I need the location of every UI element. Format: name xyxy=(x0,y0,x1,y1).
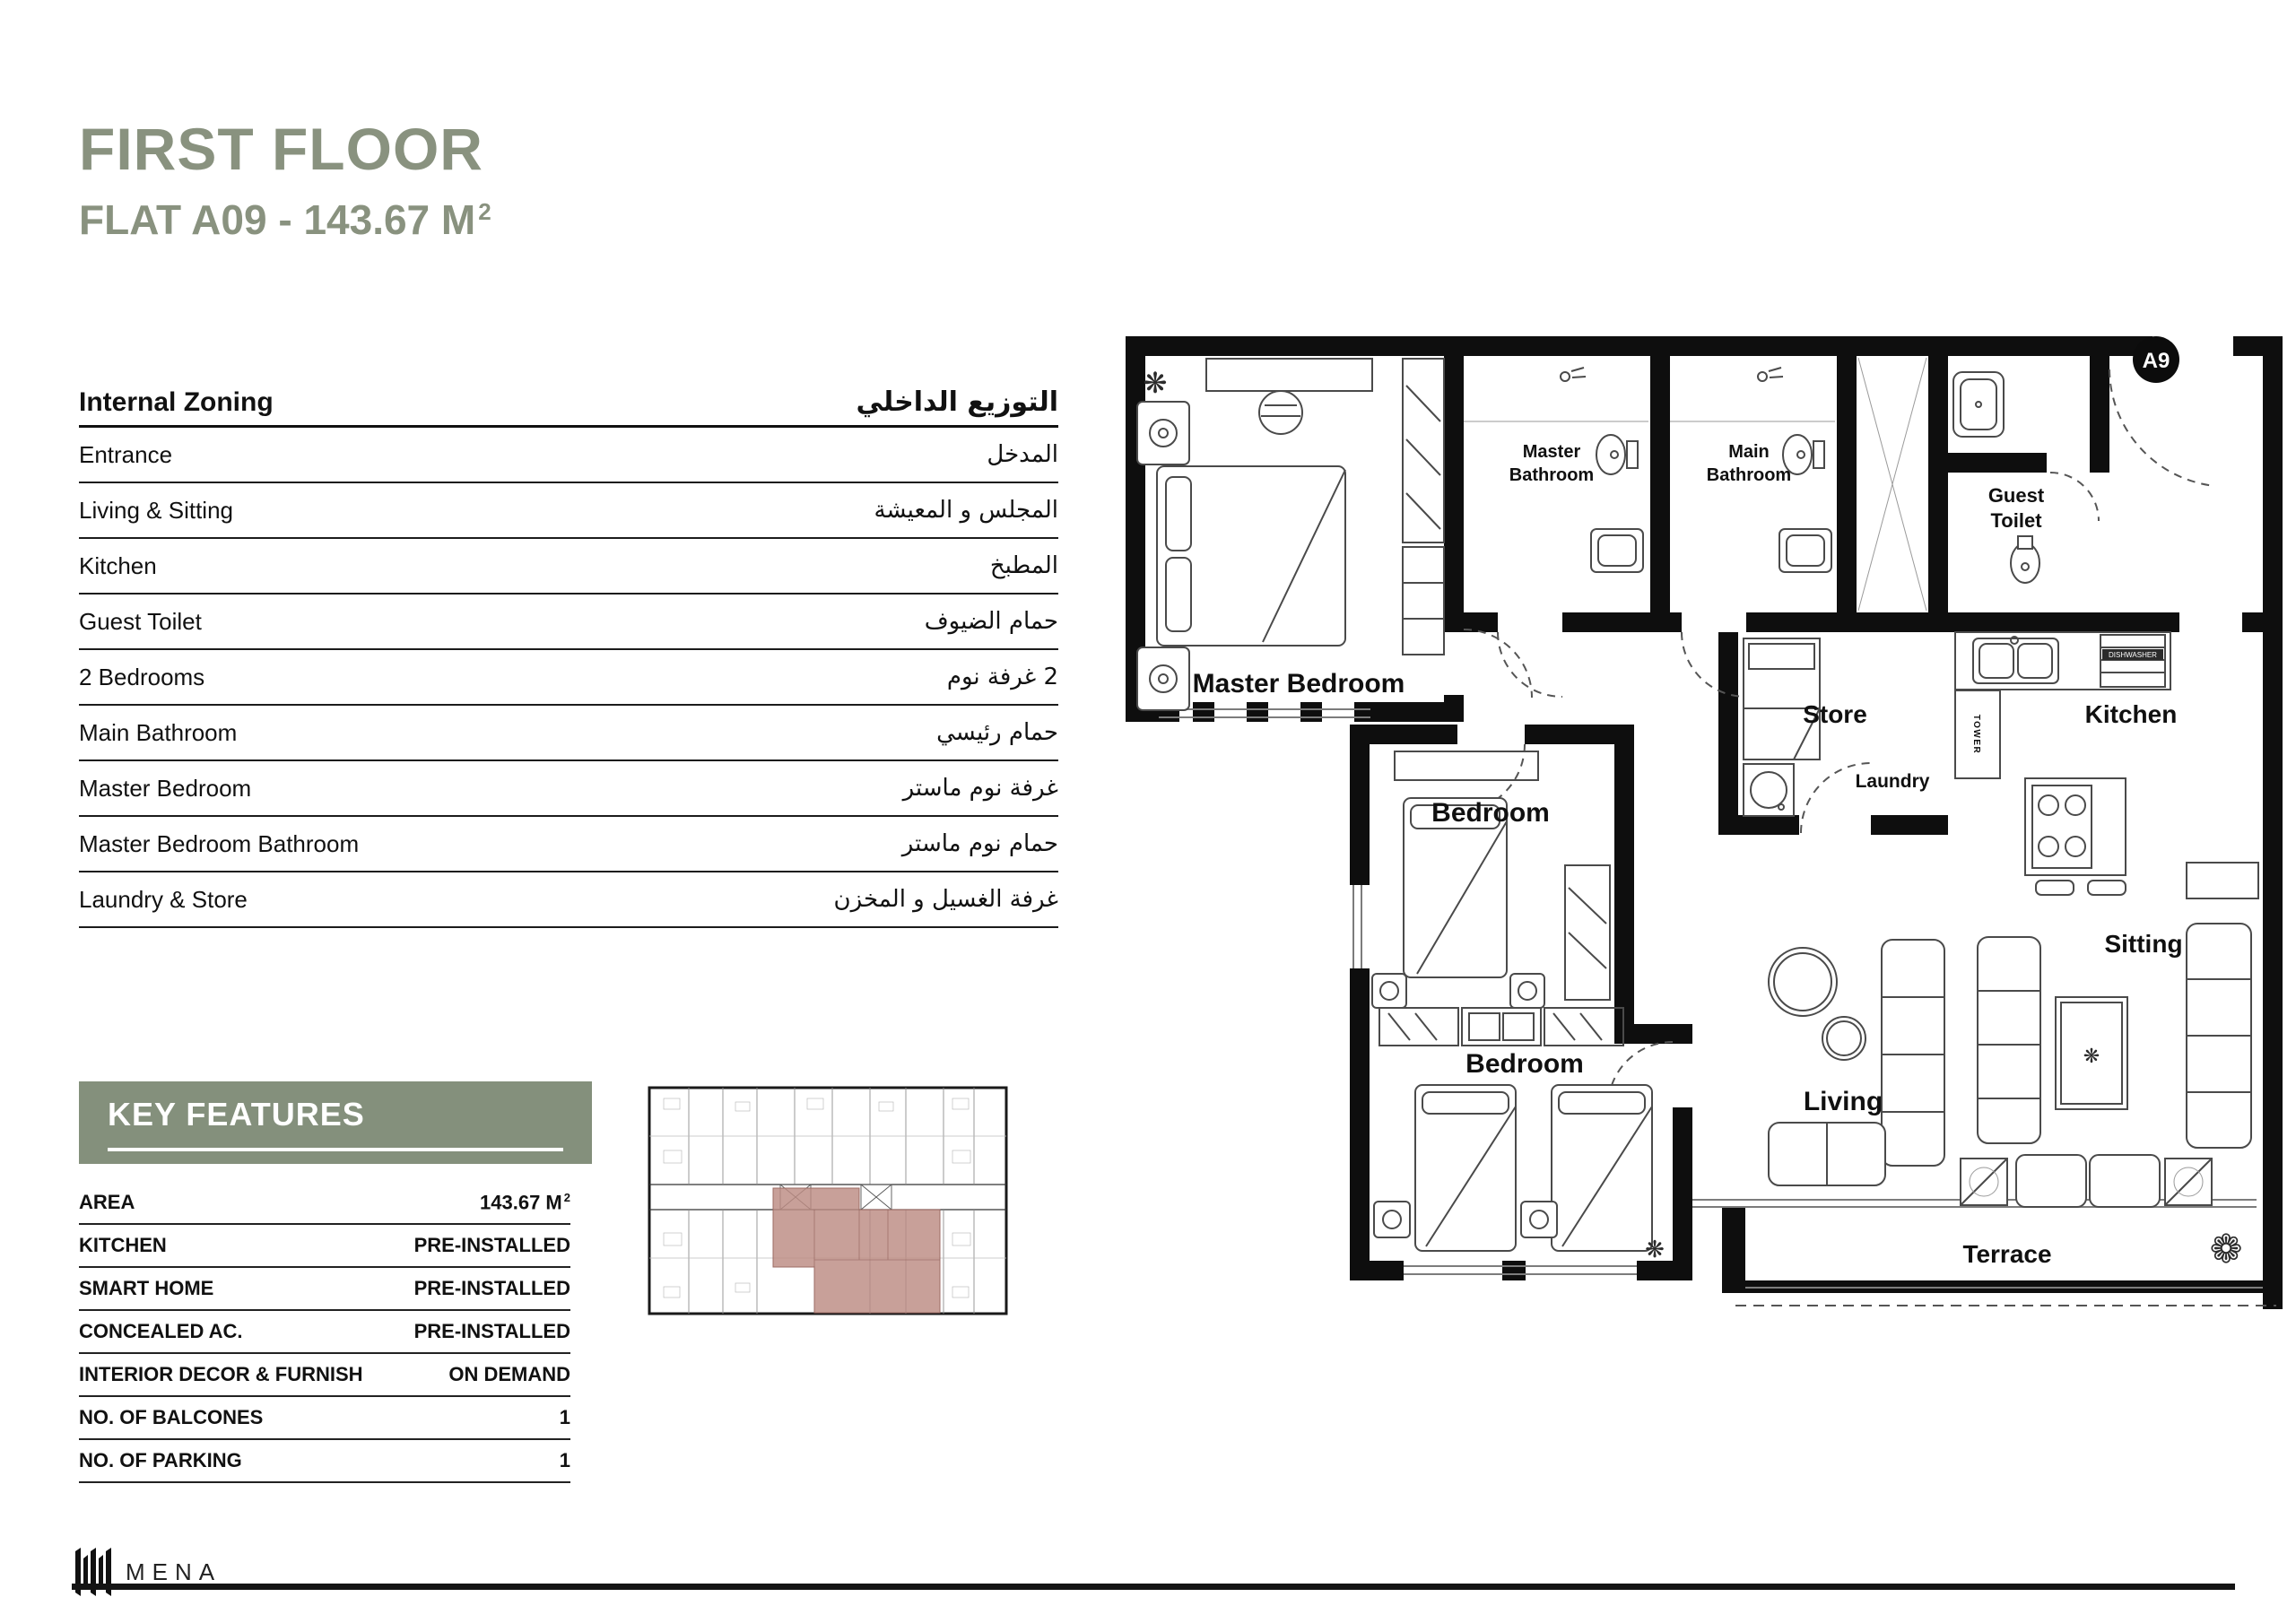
feature-row: NO. OF PARKING1 xyxy=(79,1440,570,1483)
internal-zoning-table: Internal Zoning التوزيع الداخلي Entrance… xyxy=(79,366,1058,928)
label-sitting: Sitting xyxy=(2104,930,2182,958)
living-sitting-furniture: ❋ xyxy=(1769,863,2258,1207)
feature-value: ON DEMAND xyxy=(448,1363,570,1386)
footer-rule xyxy=(72,1584,2235,1590)
zoning-ar: حمام رئيسي xyxy=(936,719,1058,746)
key-features-underline xyxy=(108,1148,563,1151)
feature-row: AREA143.67 M2 xyxy=(79,1182,570,1225)
feature-row: INTERIOR DECOR & FURNISHON DEMAND xyxy=(79,1354,570,1397)
zoning-header-en: Internal Zoning xyxy=(79,387,274,418)
zoning-en: 2 Bedrooms xyxy=(79,664,204,691)
shaft xyxy=(1858,358,1926,611)
label-guest-toilet-1: Guest xyxy=(1988,484,2045,507)
building-key-plan xyxy=(637,1081,1018,1342)
feature-value: PRE-INSTALLED xyxy=(414,1277,570,1300)
feature-value: 1 xyxy=(560,1449,570,1472)
feature-value: 1 xyxy=(560,1406,570,1429)
feature-label: KITCHEN xyxy=(79,1234,167,1257)
bedroom2-furniture: ❋ xyxy=(1374,1085,1665,1263)
feature-row: KITCHENPRE-INSTALLED xyxy=(79,1225,570,1268)
feature-row: CONCEALED AC.PRE-INSTALLED xyxy=(79,1311,570,1354)
feature-row: NO. OF BALCONES1 xyxy=(79,1397,570,1440)
zoning-row: Master Bedroomغرفة نوم ماستر xyxy=(79,761,1058,817)
highlighted-unit xyxy=(773,1188,940,1313)
kitchen-furniture: DISHWASHER TOWER xyxy=(1955,632,2170,895)
zoning-ar: غرفة نوم ماستر xyxy=(903,775,1058,802)
dishwasher-label: DISHWASHER xyxy=(2109,651,2157,659)
zoning-ar: 2 غرفة نوم xyxy=(947,664,1058,690)
subtitle-superscript: 2 xyxy=(478,198,491,225)
zoning-en: Guest Toilet xyxy=(79,608,202,636)
zoning-row: Master Bedroom Bathroomحمام نوم ماستر xyxy=(79,817,1058,872)
zoning-row: 2 Bedrooms2 غرفة نوم xyxy=(79,650,1058,706)
floorplan-sheet: FIRST FLOOR FLAT A09 - 143.67 M2 Interna… xyxy=(0,0,2296,1623)
label-laundry: Laundry xyxy=(1856,771,1930,792)
feature-value: PRE-INSTALLED xyxy=(414,1234,570,1257)
label-kitchen: Kitchen xyxy=(2085,700,2178,728)
zoning-ar: المجلس و المعيشة xyxy=(874,497,1059,524)
zoning-en: Kitchen xyxy=(79,552,157,580)
label-guest-toilet-2: Toilet xyxy=(1990,509,2042,532)
page-title: FIRST FLOOR xyxy=(79,115,483,183)
label-master-bathroom-2: Bathroom xyxy=(1509,465,1594,485)
zoning-ar: حمام نوم ماستر xyxy=(902,830,1058,857)
zoning-ar: المدخل xyxy=(987,441,1058,468)
label-main-bathroom-1: Main xyxy=(1728,442,1770,462)
feature-label: NO. OF BALCONES xyxy=(79,1406,263,1429)
key-features-banner: KEY FEATURES xyxy=(79,1081,592,1164)
svg-text:❋: ❋ xyxy=(1144,366,1168,400)
zoning-row: Living & Sittingالمجلس و المعيشة xyxy=(79,483,1058,539)
zoning-row: Laundry & Storeغرفة الغسيل و المخزن xyxy=(79,872,1058,928)
zoning-en: Entrance xyxy=(79,441,172,469)
zoning-en: Laundry & Store xyxy=(79,886,248,914)
key-features-table: AREA143.67 M2 KITCHENPRE-INSTALLED SMART… xyxy=(79,1182,570,1483)
brand-name: MENA xyxy=(126,1558,222,1586)
feature-value: 143.67 M2 xyxy=(480,1191,570,1214)
zoning-row: Kitchenالمطبخ xyxy=(79,539,1058,595)
feature-label: AREA xyxy=(79,1191,135,1214)
feature-label: NO. OF PARKING xyxy=(79,1449,242,1472)
guest-toilet-fixtures xyxy=(1953,372,2039,583)
zoning-row: Main Bathroomحمام رئيسي xyxy=(79,706,1058,761)
svg-text:❋: ❋ xyxy=(2083,1046,2100,1068)
label-bedroom-1: Bedroom xyxy=(1431,798,1550,828)
feature-row: SMART HOMEPRE-INSTALLED xyxy=(79,1268,570,1311)
flat-subtitle-text: FLAT A09 - 143.67 M xyxy=(79,196,475,243)
area-superscript: 2 xyxy=(564,1191,570,1204)
tower-unit-label: TOWER xyxy=(1971,715,1981,755)
key-features-title: KEY FEATURES xyxy=(108,1096,365,1133)
zoning-ar: حمام الضيوف xyxy=(925,608,1058,635)
unit-badge-text: A9 xyxy=(2143,349,2170,373)
label-main-bathroom-2: Bathroom xyxy=(1707,465,1791,485)
label-master-bathroom-1: Master xyxy=(1523,442,1581,462)
label-store: Store xyxy=(1803,700,1867,728)
zoning-en: Main Bathroom xyxy=(79,719,237,747)
zoning-row: Entranceالمدخل xyxy=(79,428,1058,483)
label-bedroom-2: Bedroom xyxy=(1465,1049,1584,1079)
svg-text:❋: ❋ xyxy=(1645,1237,1665,1263)
zoning-ar: غرفة الغسيل و المخزن xyxy=(834,886,1058,913)
feature-value: PRE-INSTALLED xyxy=(414,1320,570,1343)
unit-badge: A9 xyxy=(2133,336,2179,383)
zoning-en: Master Bedroom xyxy=(79,775,251,803)
zoning-en: Living & Sitting xyxy=(79,497,233,525)
zoning-header: Internal Zoning التوزيع الداخلي xyxy=(79,366,1058,428)
label-terrace: Terrace xyxy=(1962,1240,2051,1268)
zoning-ar: المطبخ xyxy=(990,552,1058,579)
master-bedroom-furniture: ❋ xyxy=(1137,359,1444,710)
flat-floor-plan: ❋ DISH xyxy=(1121,318,2287,1314)
feature-label: SMART HOME xyxy=(79,1277,213,1300)
feature-label: INTERIOR DECOR & FURNISH xyxy=(79,1363,363,1386)
bedroom1-furniture xyxy=(1372,751,1623,1046)
zoning-header-ar: التوزيع الداخلي xyxy=(857,386,1058,418)
label-living: Living xyxy=(1804,1087,1883,1116)
label-master-bedroom: Master Bedroom xyxy=(1193,669,1405,699)
terrace-plant: ❁ xyxy=(2210,1227,2243,1272)
zoning-en: Master Bedroom Bathroom xyxy=(79,830,359,858)
feature-label: CONCEALED AC. xyxy=(79,1320,243,1343)
flat-subtitle: FLAT A09 - 143.67 M2 xyxy=(79,195,491,244)
zoning-row: Guest Toiletحمام الضيوف xyxy=(79,595,1058,650)
